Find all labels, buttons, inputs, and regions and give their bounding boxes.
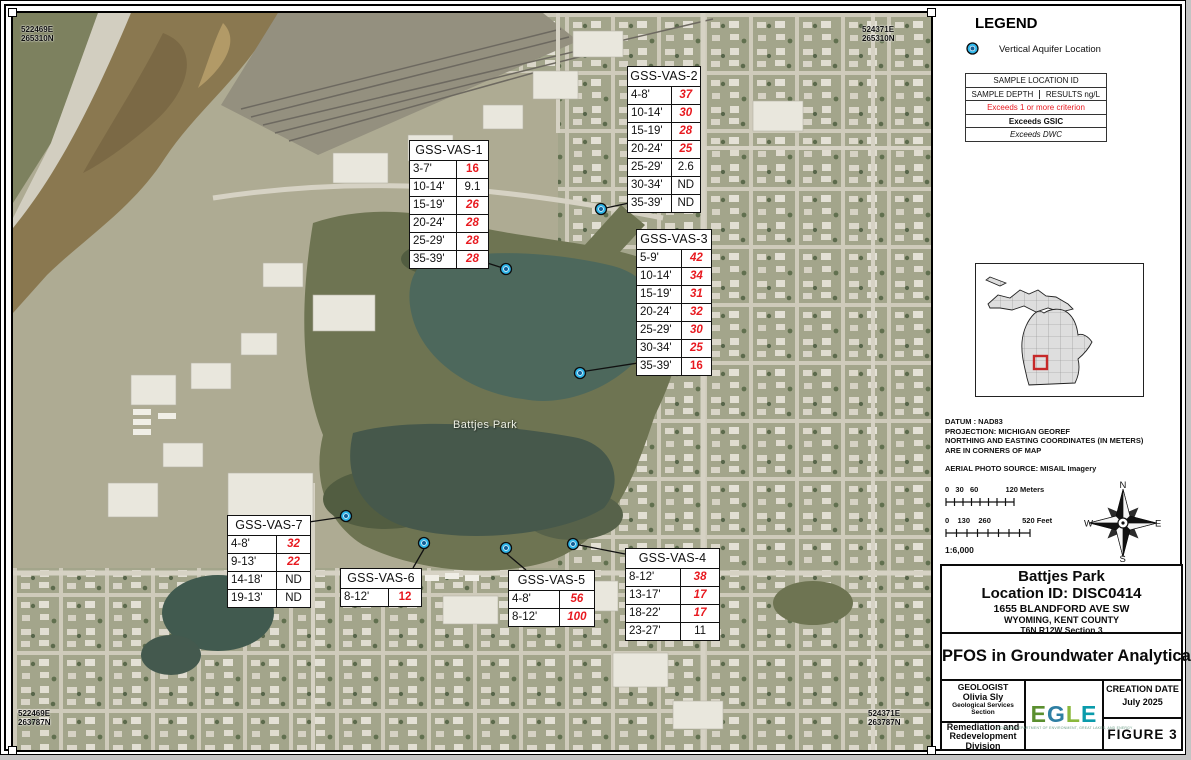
sample-depth: 15-19': [637, 286, 682, 303]
sample-depth: 15-19': [628, 123, 672, 140]
sample-depth: 10-14': [637, 268, 682, 285]
isle-royale-shape: [986, 277, 1006, 286]
sample-result: 16: [682, 358, 711, 375]
station-tables-layer: GSS-VAS-13-7'1610-14'9.115-19'2620-24'28…: [13, 13, 931, 750]
compass-east-label: E: [1155, 519, 1161, 530]
frame-handle-bottom-left: [8, 746, 17, 755]
sample-result: ND: [277, 590, 310, 607]
scale-bars: 0 30 60 120 Meters 0 130 260 520 Feet: [945, 485, 1052, 543]
sample-row: 8-12'100: [509, 608, 594, 626]
sample-row: 25-29'28: [410, 232, 488, 250]
feet-scale-bar: [945, 528, 1041, 538]
map-frame: 522469E265310N 524371E265310N 522469E263…: [11, 11, 933, 752]
station-table-gss-vas-2: GSS-VAS-24-8'3710-14'3015-19'2820-24'252…: [627, 66, 701, 213]
sample-depth: 15-19': [410, 197, 457, 214]
sample-depth: 20-24': [637, 304, 682, 321]
map-notes: DATUM : NAD83 PROJECTION: MICHIGAN GEORE…: [945, 417, 1143, 474]
sample-depth: 35-39': [628, 195, 672, 212]
sample-result: 28: [457, 215, 488, 232]
sample-result: ND: [672, 177, 700, 194]
sample-row: 13-17'17: [626, 586, 719, 604]
coordinates-note-1: NORTHING AND EASTING COORDINATES (IN MET…: [945, 436, 1143, 446]
key-results-column: RESULTS ng/L: [1040, 90, 1106, 99]
vertical-aquifer-location-icon: [965, 41, 980, 56]
agency-logo-cell: EGLE MICHIGAN DEPARTMENT OF ENVIRONMENT,…: [1026, 681, 1104, 751]
figure-subject: PFOS in Groundwater Analytical: [942, 632, 1181, 681]
sample-result: 42: [682, 250, 711, 267]
sample-result: 26: [457, 197, 488, 214]
sample-result: 32: [277, 536, 310, 553]
frame-handle-bottom-right: [927, 746, 936, 755]
frame-handle-top-right: [927, 8, 936, 17]
sample-row: 19-13'ND: [228, 589, 310, 607]
sample-depth: 8-12': [626, 569, 681, 586]
title-block-site-info: Battjes Park Location ID: DISC0414 1655 …: [942, 566, 1181, 632]
sample-row: 10-14'30: [628, 104, 700, 122]
sample-result: 28: [672, 123, 700, 140]
coordinates-note-2: ARE IN CORNERS OF MAP: [945, 446, 1143, 456]
sample-depth: 13-17': [626, 587, 681, 604]
sample-row: 30-34'25: [637, 339, 711, 357]
sample-result: 28: [457, 251, 488, 268]
sample-result: 22: [277, 554, 310, 571]
sample-row: 15-19'26: [410, 196, 488, 214]
key-columns: SAMPLE DEPTH RESULTS ng/L: [966, 87, 1106, 101]
sample-depth: 30-34': [628, 177, 672, 194]
key-depth-column: SAMPLE DEPTH: [966, 90, 1040, 99]
sample-row: 25-29'30: [637, 321, 711, 339]
station-table-title: GSS-VAS-2: [628, 67, 700, 87]
sample-row: 35-39'ND: [628, 194, 700, 212]
sample-depth: 8-12': [509, 609, 560, 626]
sample-depth: 8-12': [341, 589, 389, 606]
compass-north-label: N: [1120, 480, 1127, 491]
station-table-title: GSS-VAS-3: [637, 230, 711, 250]
sample-depth: 20-24': [410, 215, 457, 232]
upper-peninsula-shape: [988, 290, 1073, 312]
lower-peninsula-shape: [1022, 309, 1092, 385]
sample-depth: 10-14': [628, 105, 672, 122]
sample-depth: 4-8': [628, 87, 672, 104]
station-table-title: GSS-VAS-6: [341, 569, 421, 589]
sample-depth: 10-14': [410, 179, 457, 196]
sample-depth: 14-18': [228, 572, 277, 589]
sample-result: 31: [682, 286, 711, 303]
station-table-title: GSS-VAS-7: [228, 516, 310, 536]
side-panel: LEGEND Vertical Aquifer Location SAMPLE …: [937, 7, 1185, 751]
sample-depth: 35-39': [410, 251, 457, 268]
sample-row: 5-9'42: [637, 250, 711, 267]
legend-title: LEGEND: [975, 15, 1038, 32]
sample-depth: 18-22': [626, 605, 681, 622]
sample-row: 20-24'25: [628, 140, 700, 158]
scale-ratio: 1:6,000: [945, 545, 974, 555]
title-block: Battjes Park Location ID: DISC0414 1655 …: [940, 564, 1183, 751]
sample-row: 14-18'ND: [228, 571, 310, 589]
location-id: Location ID: DISC0414: [942, 585, 1181, 602]
creation-date-label: CREATION DATE: [1104, 684, 1181, 695]
station-table-gss-vas-5: GSS-VAS-54-8'568-12'100: [508, 570, 595, 627]
key-exceeds-criterion: Exceeds 1 or more criterion: [966, 100, 1106, 114]
sample-depth: 23-27': [626, 623, 681, 640]
sample-result: 16: [457, 161, 488, 178]
sample-row: 23-27'11: [626, 622, 719, 640]
sample-result: 25: [682, 340, 711, 357]
station-table-gss-vas-1: GSS-VAS-13-7'1610-14'9.115-19'2620-24'28…: [409, 140, 489, 269]
sample-row: 15-19'28: [628, 122, 700, 140]
sample-depth: 9-13': [228, 554, 277, 571]
egle-logo: EGLE: [1031, 703, 1098, 725]
sample-result: 100: [560, 609, 594, 626]
sample-depth: 20-24': [628, 141, 672, 158]
sample-row: 15-19'31: [637, 285, 711, 303]
sample-result: ND: [277, 572, 310, 589]
sample-key-table: SAMPLE LOCATION ID SAMPLE DEPTH RESULTS …: [965, 73, 1107, 142]
geologist-name: Olivia Sly: [942, 692, 1024, 702]
sample-result: 9.1: [457, 179, 488, 196]
station-table-gss-vas-4: GSS-VAS-48-12'3813-17'1718-22'1723-27'11: [625, 548, 720, 641]
sample-row: 4-8'32: [228, 536, 310, 553]
sample-row: 20-24'28: [410, 214, 488, 232]
sample-result: 17: [681, 605, 719, 622]
station-table-gss-vas-6: GSS-VAS-68-12'12: [340, 568, 422, 607]
sample-row: 9-13'22: [228, 553, 310, 571]
key-exceeds-gsic: Exceeds GSIC: [966, 114, 1106, 128]
key-header: SAMPLE LOCATION ID: [966, 74, 1106, 87]
sample-result: 30: [682, 322, 711, 339]
sample-result: 17: [681, 587, 719, 604]
sample-depth: 25-29': [628, 159, 672, 176]
sample-row: 8-12'38: [626, 569, 719, 586]
sample-result: 37: [672, 87, 700, 104]
sample-row: 10-14'9.1: [410, 178, 488, 196]
sample-row: 3-7'16: [410, 161, 488, 178]
figure-number: FIGURE 3: [1104, 719, 1181, 751]
compass-south-label: S: [1120, 554, 1126, 563]
sample-depth: 25-29': [637, 322, 682, 339]
compass-west-label: W: [1084, 519, 1093, 530]
michigan-locator-inset: [975, 263, 1144, 397]
aerial-source-note: AERIAL PHOTO SOURCE: MISAIL Imagery: [945, 464, 1143, 474]
station-table-title: GSS-VAS-1: [410, 141, 488, 161]
site-name: Battjes Park: [942, 568, 1181, 585]
sample-result: 32: [682, 304, 711, 321]
station-table-gss-vas-3: GSS-VAS-35-9'4210-14'3415-19'3120-24'322…: [636, 229, 712, 376]
key-exceeds-dwc: Exceeds DWC: [966, 127, 1106, 141]
station-table-title: GSS-VAS-5: [509, 571, 594, 591]
sample-result: 34: [682, 268, 711, 285]
sample-row: 20-24'32: [637, 303, 711, 321]
frame-handle-top-left: [8, 8, 17, 17]
sample-row: 35-39'28: [410, 250, 488, 268]
sample-result: 38: [681, 569, 719, 586]
title-block-footer: GEOLOGIST Olivia Sly Geological Services…: [942, 681, 1181, 751]
station-table-gss-vas-7: GSS-VAS-74-8'329-13'2214-18'ND19-13'ND: [227, 515, 311, 608]
site-city: WYOMING, KENT COUNTY: [942, 615, 1181, 625]
sample-result: 2.6: [672, 159, 700, 176]
sample-depth: 5-9': [637, 250, 682, 267]
legend-item-label: Vertical Aquifer Location: [999, 44, 1101, 55]
sample-depth: 19-13': [228, 590, 277, 607]
sample-row: 8-12'12: [341, 589, 421, 606]
site-address: 1655 BLANDFORD AVE SW: [942, 603, 1181, 615]
sample-result: 25: [672, 141, 700, 158]
meters-scale-bar: [945, 497, 1025, 507]
sample-depth: 4-8': [509, 591, 560, 608]
sample-row: 4-8'37: [628, 87, 700, 104]
sample-result: 56: [560, 591, 594, 608]
sample-result: 30: [672, 105, 700, 122]
sample-row: 4-8'56: [509, 591, 594, 608]
sample-result: 11: [681, 623, 719, 640]
sample-depth: 30-34': [637, 340, 682, 357]
sample-row: 35-39'16: [637, 357, 711, 375]
geologist-section: Geological Services Section: [942, 702, 1024, 716]
sample-row: 18-22'17: [626, 604, 719, 622]
compass-rose-icon: N E S W: [1083, 479, 1163, 563]
projection-note: PROJECTION: MICHIGAN GEOREF: [945, 427, 1143, 437]
sample-depth: 4-8': [228, 536, 277, 553]
sample-row: 30-34'ND: [628, 176, 700, 194]
sample-depth: 35-39': [637, 358, 682, 375]
sample-result: 12: [389, 589, 421, 606]
meters-scale-label: 0 30 60 120 Meters: [945, 485, 1052, 494]
sample-row: 10-14'34: [637, 267, 711, 285]
creation-date-value: July 2025: [1104, 695, 1181, 710]
datum-note: DATUM : NAD83: [945, 417, 1143, 427]
feet-scale-label: 0 130 260 520 Feet: [945, 516, 1052, 525]
sample-depth: 25-29': [410, 233, 457, 250]
geologist-cell: GEOLOGIST Olivia Sly Geological Services…: [942, 681, 1026, 751]
station-table-title: GSS-VAS-4: [626, 549, 719, 569]
date-figure-cell: CREATION DATE July 2025 FIGURE 3: [1104, 681, 1181, 751]
figure-sheet: 522469E265310N 524371E265310N 522469E263…: [0, 0, 1186, 755]
michigan-map: [976, 264, 1141, 394]
sample-depth: 3-7': [410, 161, 457, 178]
geologist-label: GEOLOGIST: [942, 682, 1024, 692]
sample-result: ND: [672, 195, 700, 212]
sample-result: 28: [457, 233, 488, 250]
sample-row: 25-29'2.6: [628, 158, 700, 176]
